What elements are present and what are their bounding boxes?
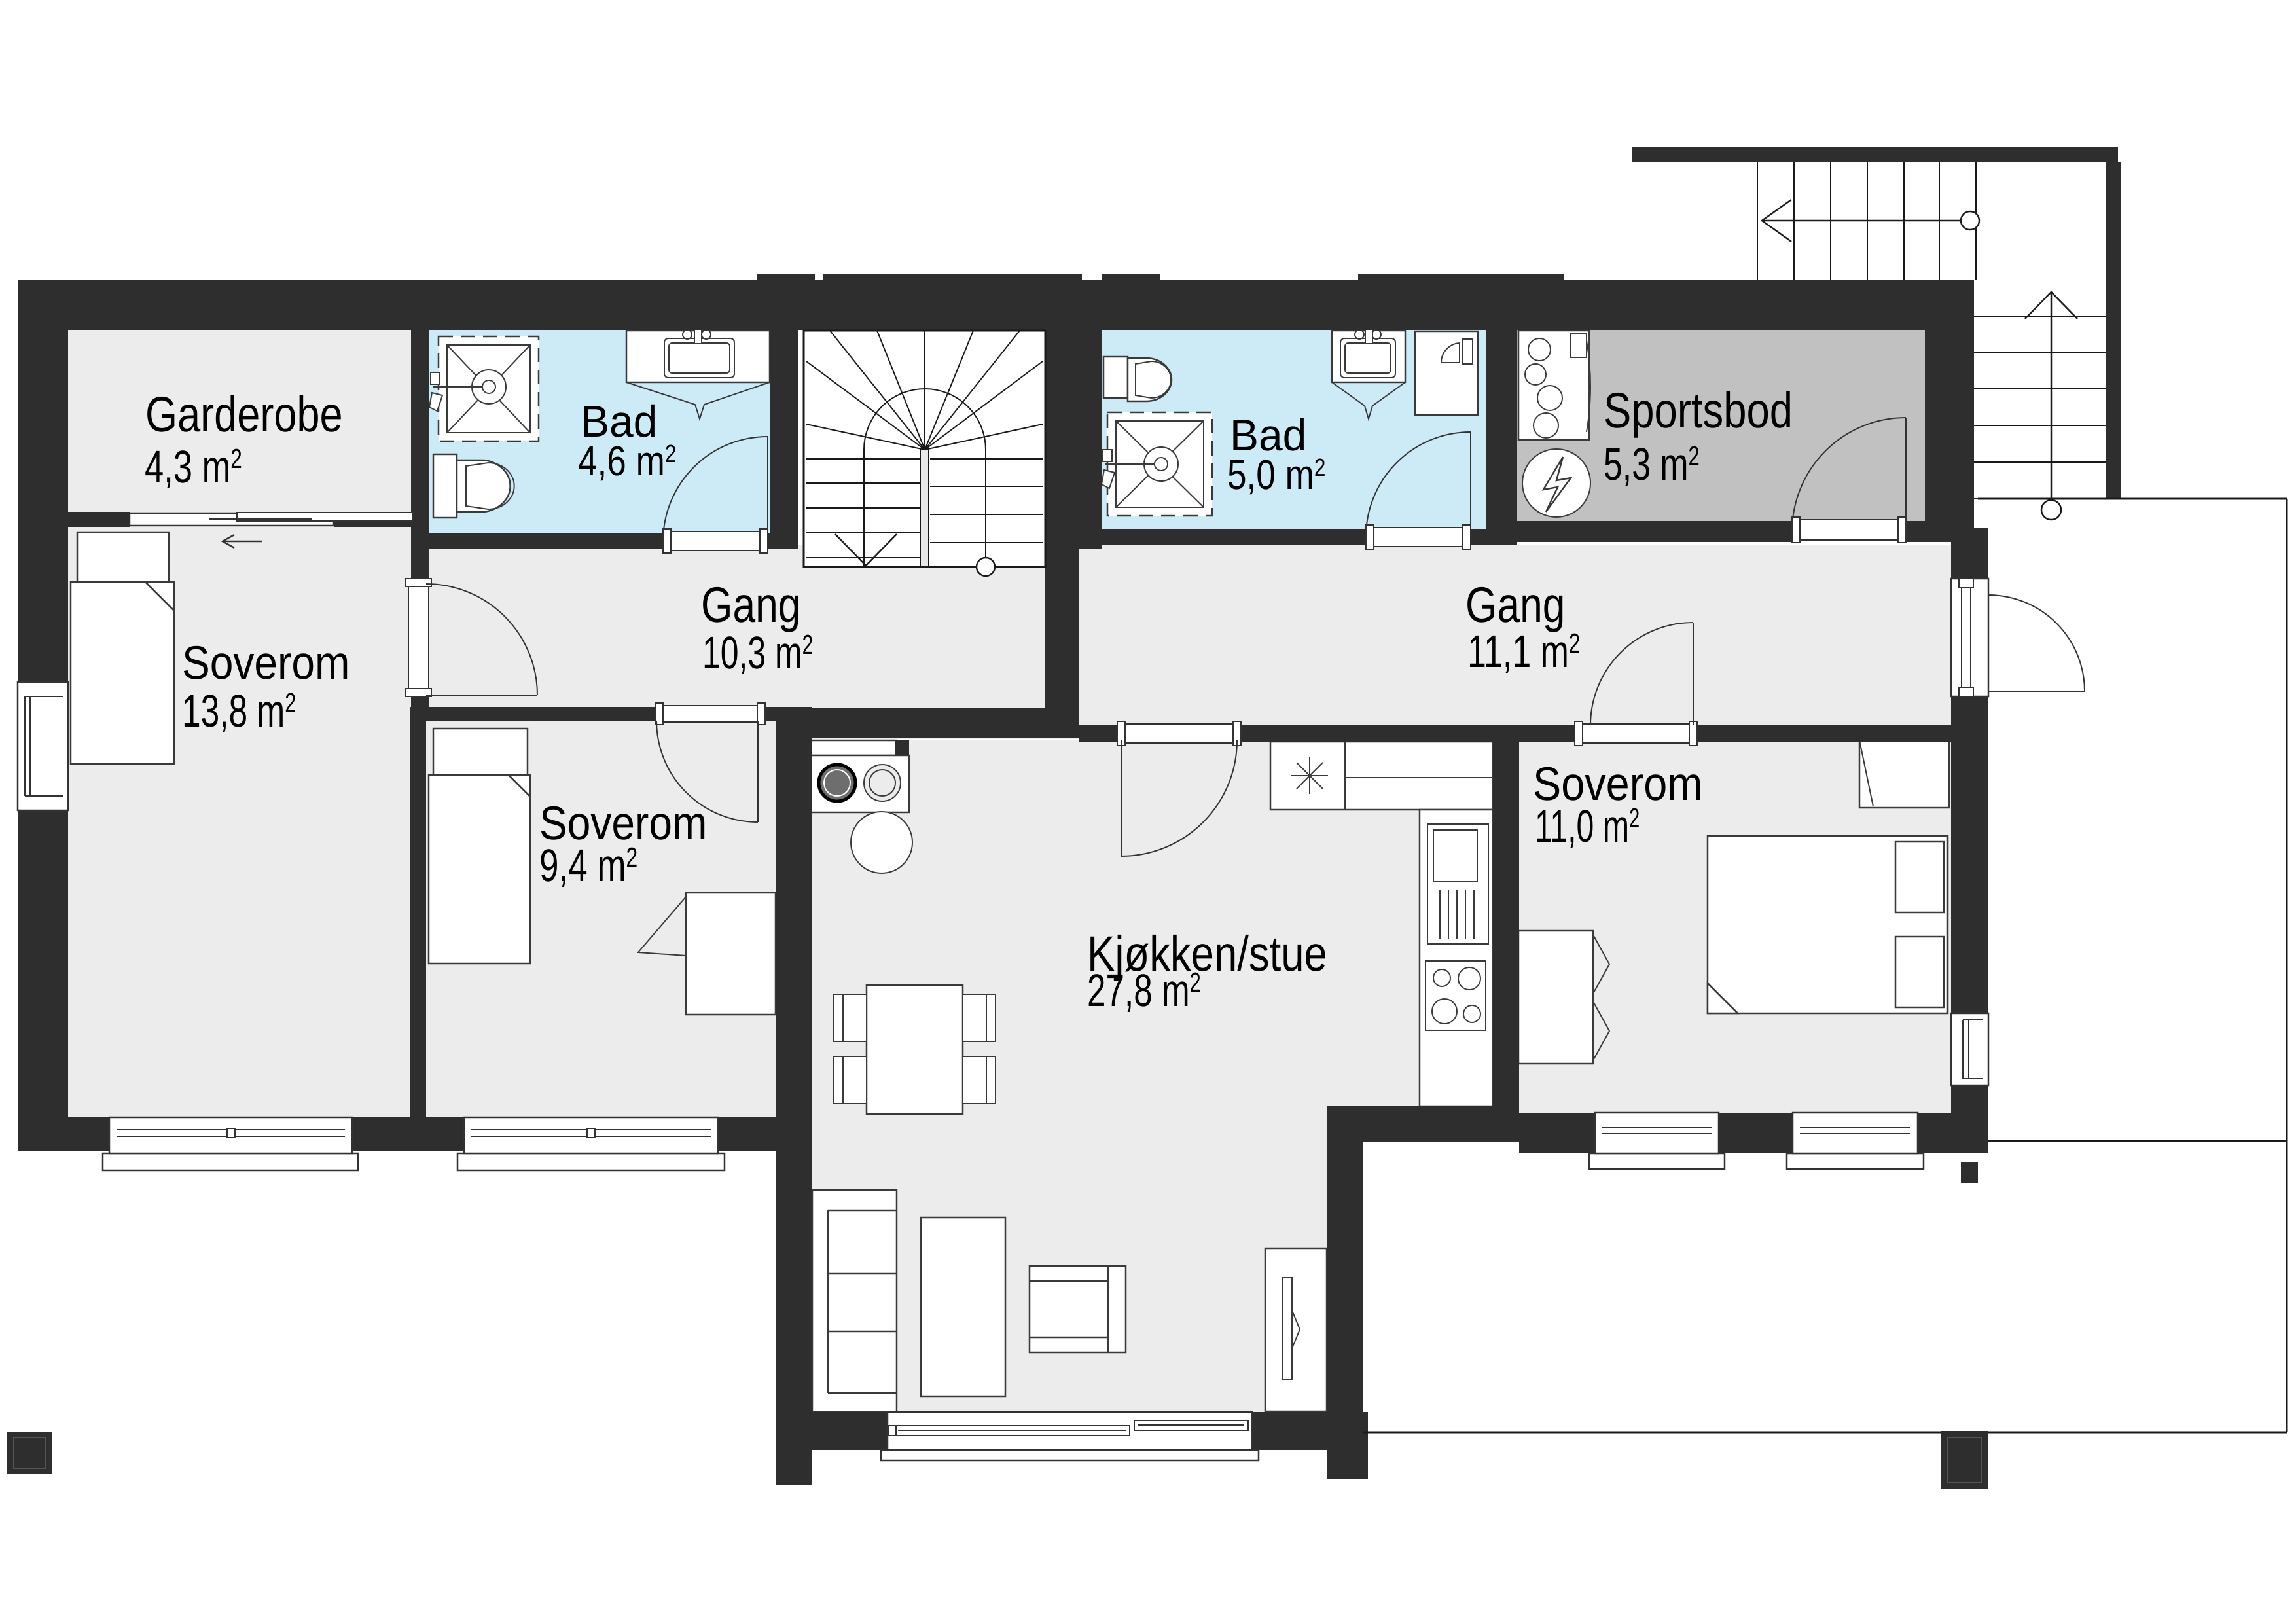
svg-text:4,6 m2: 4,6 m2	[578, 437, 676, 484]
svg-text:10,3 m2: 10,3 m2	[702, 627, 813, 678]
svg-text:Soverom: Soverom	[182, 637, 350, 689]
svg-text:Garderobe: Garderobe	[145, 387, 343, 442]
svg-text:11,1 m2: 11,1 m2	[1467, 626, 1580, 677]
svg-text:4,3 m2: 4,3 m2	[145, 441, 242, 492]
svg-text:27,8 m2: 27,8 m2	[1087, 965, 1201, 1016]
svg-text:13,8 m2: 13,8 m2	[182, 685, 296, 736]
svg-text:Gang: Gang	[1465, 577, 1565, 633]
svg-text:5,3 m2: 5,3 m2	[1604, 439, 1700, 490]
svg-text:Gang: Gang	[701, 577, 800, 633]
svg-text:Sportsbod: Sportsbod	[1604, 383, 1793, 439]
svg-text:5,0 m2: 5,0 m2	[1227, 451, 1325, 498]
svg-text:11,0 m2: 11,0 m2	[1535, 801, 1640, 852]
svg-text:9,4 m2: 9,4 m2	[539, 840, 637, 891]
